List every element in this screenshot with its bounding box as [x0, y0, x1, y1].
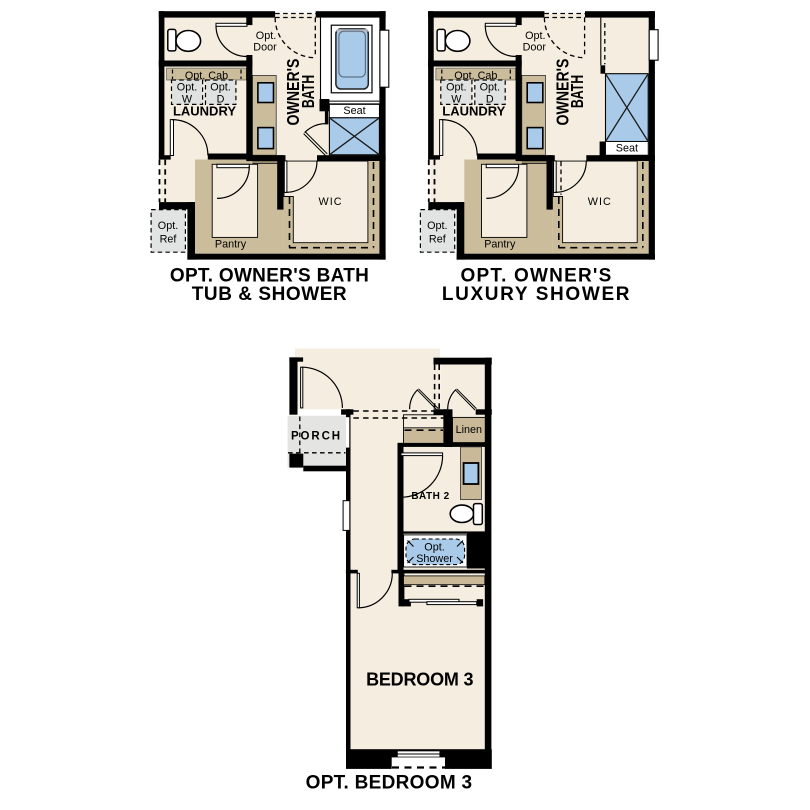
svg-text:Shower: Shower: [416, 553, 453, 565]
svg-text:LUXURY SHOWER: LUXURY SHOWER: [442, 284, 631, 305]
svg-text:Seat: Seat: [343, 105, 365, 117]
svg-text:WIC: WIC: [319, 196, 343, 208]
svg-text:OPT. BEDROOM 3: OPT. BEDROOM 3: [306, 773, 473, 794]
svg-text:Opt.: Opt.: [525, 30, 545, 42]
svg-text:LAUNDRY: LAUNDRY: [173, 104, 236, 119]
svg-text:Opt.: Opt.: [177, 82, 197, 94]
svg-text:Opt.: Opt.: [424, 542, 444, 554]
svg-text:Opt.: Opt.: [210, 82, 230, 94]
svg-text:BEDROOM 3: BEDROOM 3: [366, 670, 473, 690]
svg-text:WIC: WIC: [588, 196, 612, 208]
svg-text:Ref: Ref: [160, 234, 178, 246]
svg-text:Linen: Linen: [456, 424, 482, 436]
svg-text:PORCH: PORCH: [291, 431, 342, 443]
svg-text:LAUNDRY: LAUNDRY: [442, 104, 505, 119]
svg-text:Opt.: Opt.: [158, 220, 178, 232]
svg-text:BATH: BATH: [299, 75, 319, 108]
svg-text:Opt.: Opt.: [256, 30, 276, 42]
svg-text:TUB & SHOWER: TUB & SHOWER: [192, 284, 347, 305]
svg-text:Pantry: Pantry: [484, 238, 516, 250]
svg-text:BATH: BATH: [568, 75, 588, 108]
svg-text:Opt.: Opt.: [427, 220, 447, 232]
svg-text:Ref: Ref: [429, 234, 447, 246]
svg-text:Door: Door: [523, 42, 547, 54]
svg-text:Door: Door: [253, 42, 277, 54]
svg-text:Opt.: Opt.: [480, 82, 500, 94]
svg-text:Pantry: Pantry: [215, 238, 247, 250]
svg-text:Seat: Seat: [616, 143, 638, 155]
svg-text:BATH 2: BATH 2: [411, 491, 449, 502]
svg-text:Opt.: Opt.: [446, 82, 466, 94]
